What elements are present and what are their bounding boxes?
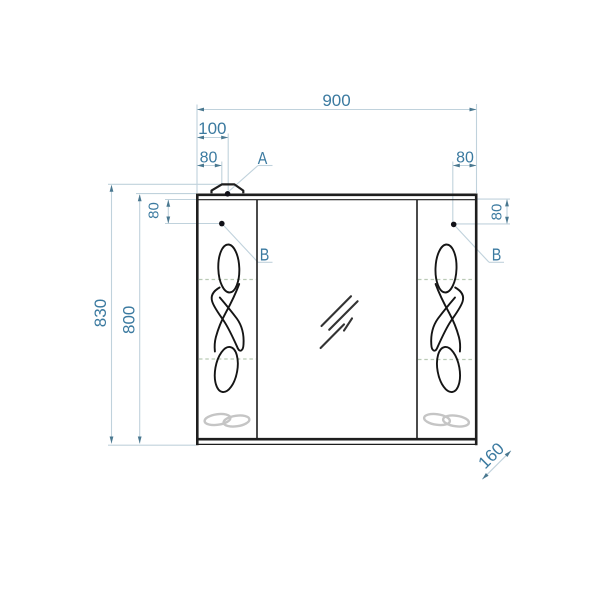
svg-text:B: B (492, 246, 502, 265)
svg-text:A: A (258, 150, 268, 169)
svg-text:830: 830 (91, 299, 110, 327)
svg-text:80: 80 (488, 204, 505, 221)
svg-text:80: 80 (456, 150, 474, 167)
svg-text:80: 80 (200, 150, 218, 167)
svg-text:80: 80 (146, 202, 163, 219)
svg-text:800: 800 (119, 306, 138, 334)
svg-text:100: 100 (198, 119, 226, 138)
svg-text:900: 900 (322, 91, 350, 110)
svg-text:B: B (260, 246, 270, 265)
